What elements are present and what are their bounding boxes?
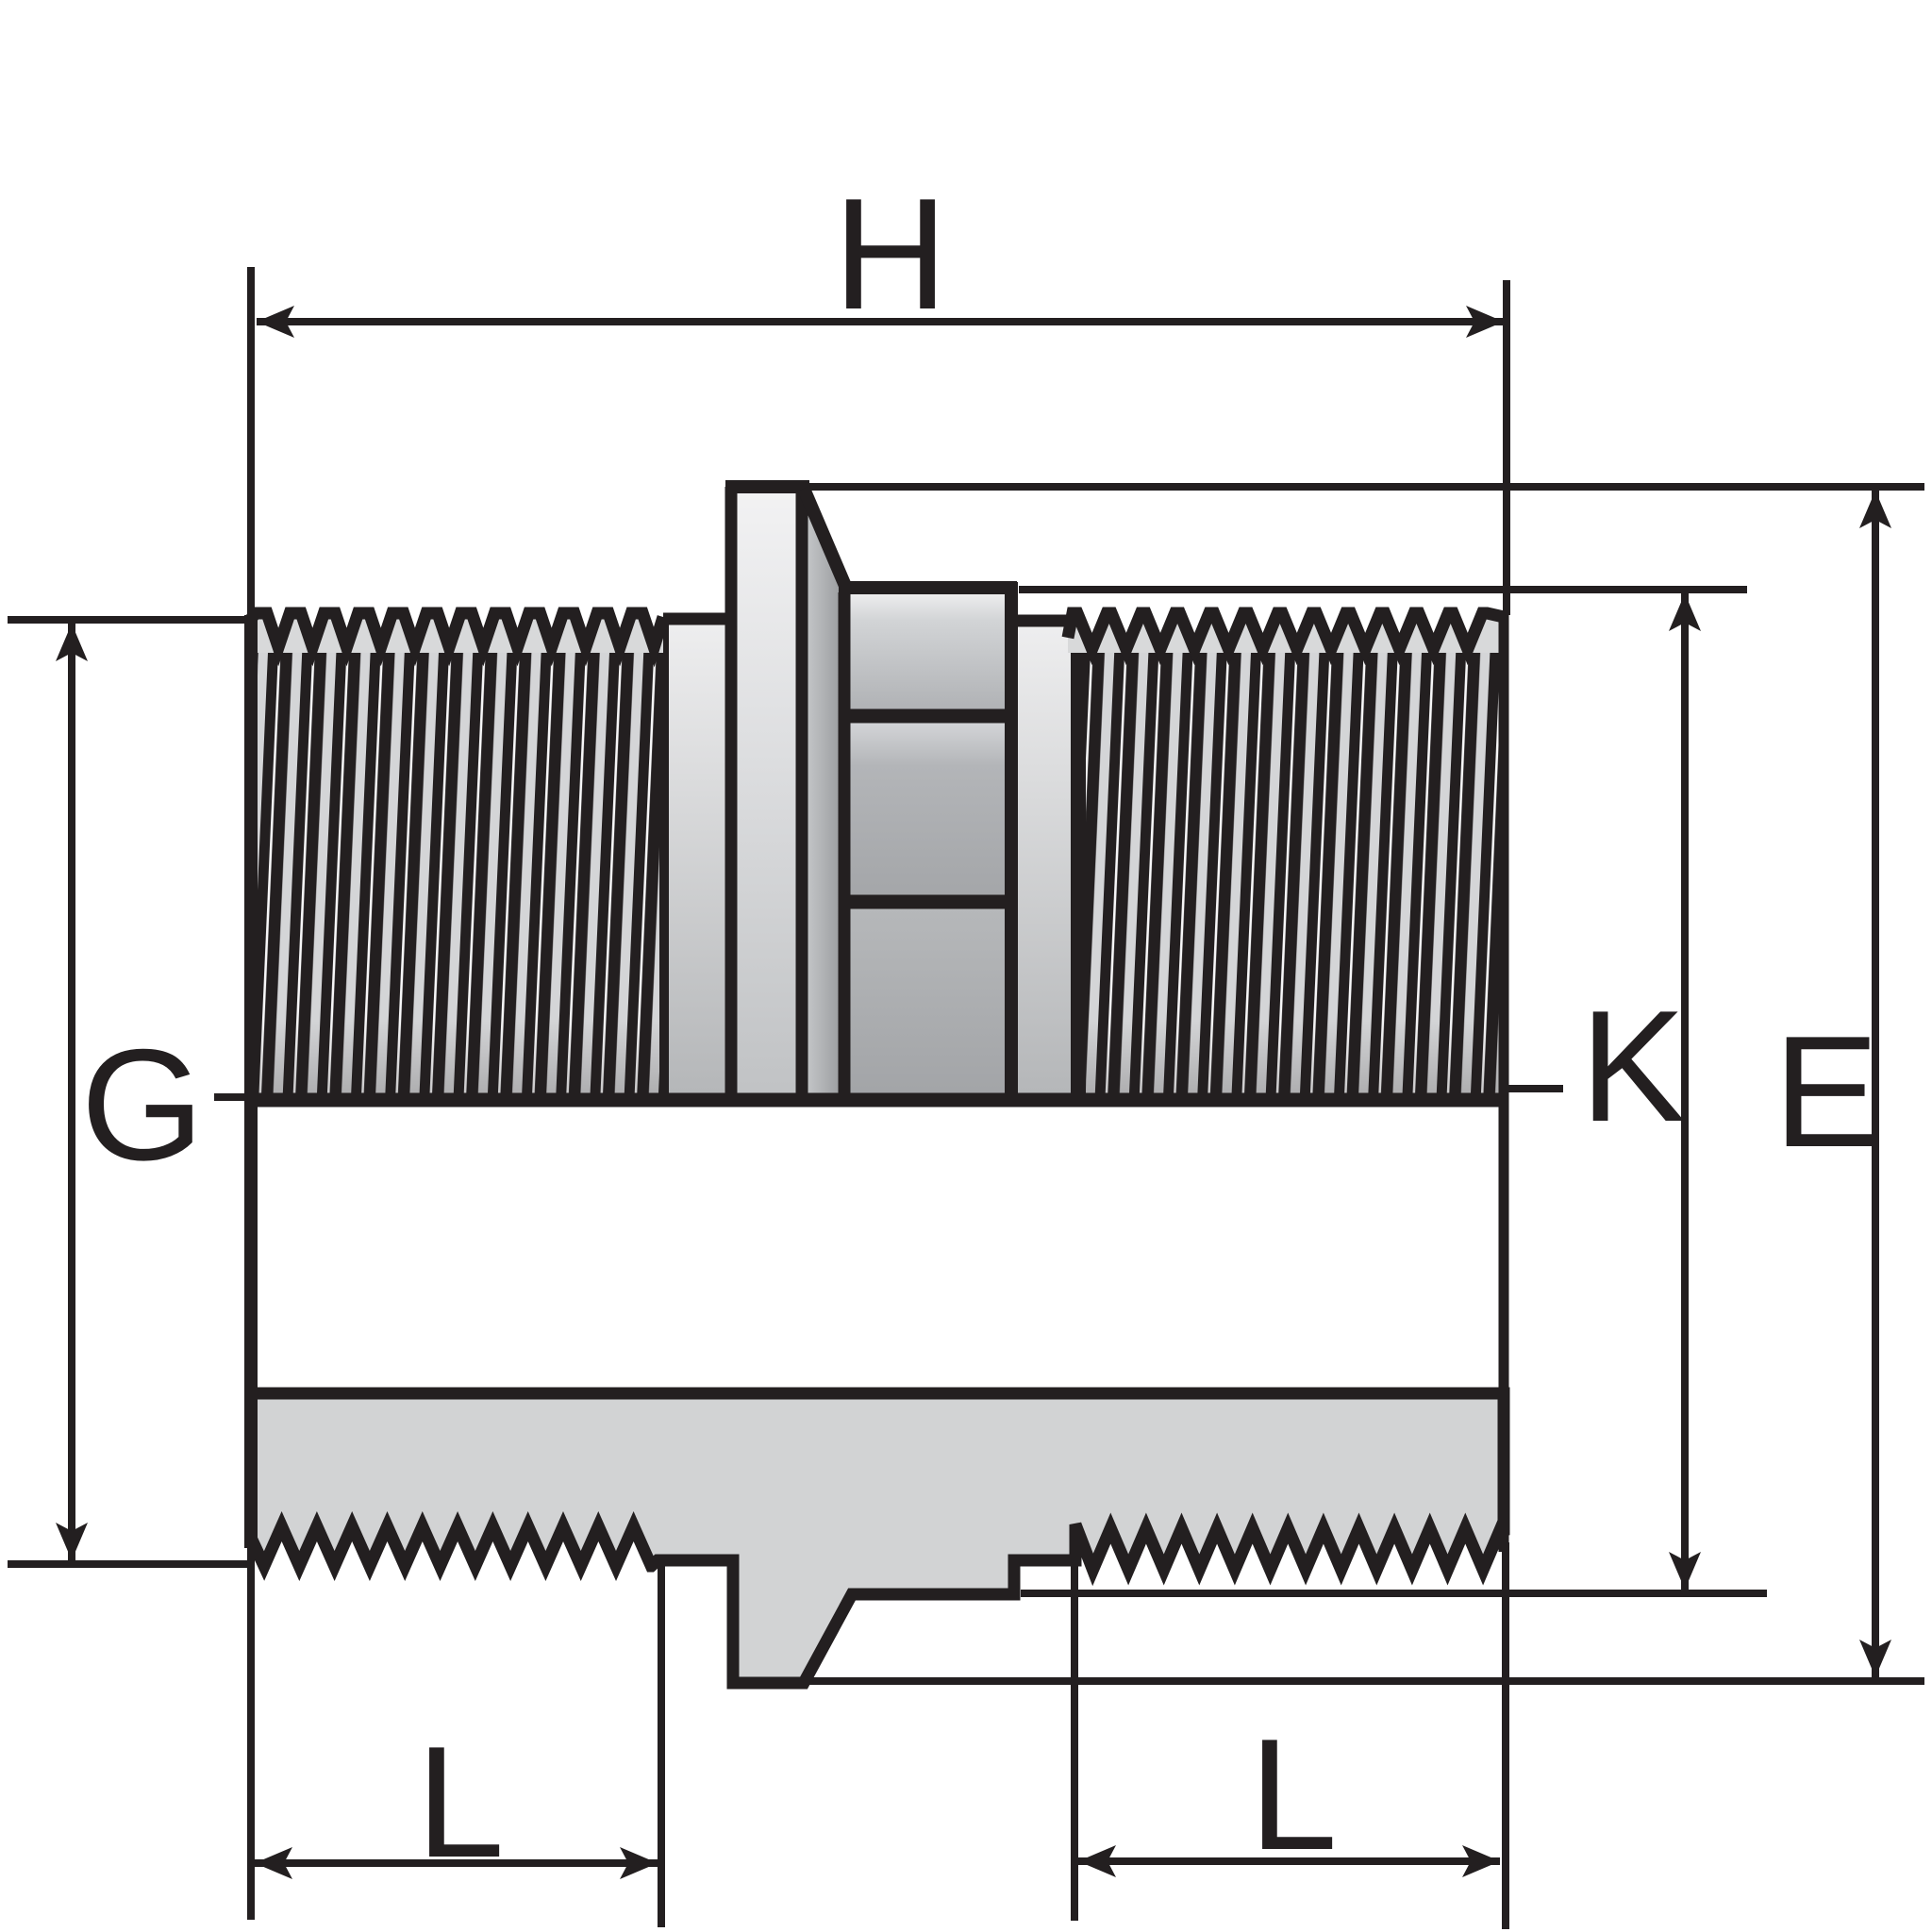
svg-text:E: E <box>1774 1003 1879 1180</box>
svg-text:L: L <box>416 1713 504 1890</box>
svg-text:H: H <box>833 165 947 342</box>
svg-text:K: K <box>1580 977 1686 1155</box>
svg-text:G: G <box>81 1016 205 1193</box>
svg-text:L: L <box>1249 1706 1337 1883</box>
